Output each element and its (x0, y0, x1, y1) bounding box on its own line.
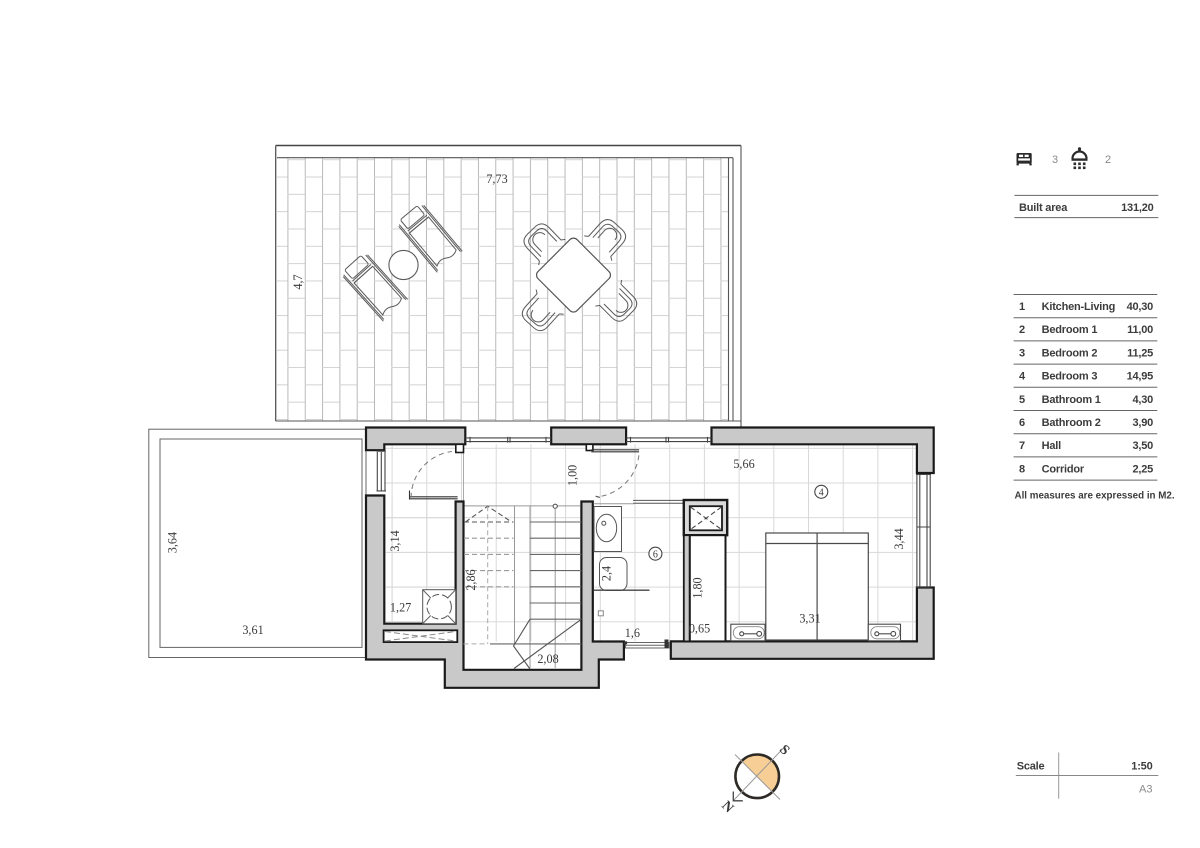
svg-text:Bedroom 2: Bedroom 2 (1042, 347, 1098, 359)
svg-text:1,00: 1,00 (566, 465, 580, 486)
svg-text:Hall: Hall (1042, 440, 1062, 452)
svg-text:2,86: 2,86 (464, 569, 478, 590)
svg-text:2,4: 2,4 (600, 566, 614, 581)
svg-text:Bedroom 3: Bedroom 3 (1042, 371, 1098, 383)
svg-text:2: 2 (1105, 154, 1111, 166)
svg-text:3,64: 3,64 (165, 532, 179, 553)
svg-text:Bathroom 2: Bathroom 2 (1042, 417, 1101, 429)
svg-text:4: 4 (819, 487, 824, 498)
svg-text:All measures are expressed in: All measures are expressed in M2. (1015, 491, 1175, 502)
svg-text:40,30: 40,30 (1127, 301, 1154, 313)
svg-text:7,73: 7,73 (486, 172, 507, 186)
svg-text:3,44: 3,44 (892, 528, 906, 549)
svg-text:6: 6 (653, 549, 658, 560)
svg-text:5: 5 (1019, 394, 1025, 406)
svg-text:3: 3 (1019, 347, 1025, 359)
svg-text:A3: A3 (1139, 784, 1152, 796)
svg-text:3,61: 3,61 (242, 623, 263, 637)
svg-text:1,6: 1,6 (625, 626, 640, 640)
svg-text:7: 7 (1019, 440, 1025, 452)
svg-text:1,80: 1,80 (691, 577, 705, 598)
svg-text:2,08: 2,08 (537, 652, 558, 666)
svg-text:Scale: Scale (1017, 761, 1045, 773)
svg-text:Built area: Built area (1019, 202, 1068, 214)
svg-text:Corridor: Corridor (1042, 463, 1085, 475)
svg-text:Kitchen-Living: Kitchen-Living (1042, 301, 1116, 313)
svg-text:1,27: 1,27 (390, 601, 411, 615)
svg-text:6: 6 (1019, 417, 1025, 429)
svg-text:2,25: 2,25 (1132, 463, 1153, 475)
svg-text:1: 1 (1019, 301, 1025, 313)
svg-text:4,7: 4,7 (291, 274, 305, 289)
svg-text:131,20: 131,20 (1121, 202, 1154, 214)
svg-text:3,50: 3,50 (1132, 440, 1153, 452)
svg-text:0,65: 0,65 (689, 622, 710, 636)
svg-text:8: 8 (1019, 463, 1025, 475)
svg-text:4: 4 (1019, 371, 1026, 383)
svg-text:Bathroom 1: Bathroom 1 (1042, 394, 1101, 406)
svg-text:3,31: 3,31 (799, 612, 820, 626)
svg-text:11,00: 11,00 (1127, 324, 1153, 336)
svg-text:4,30: 4,30 (1132, 394, 1153, 406)
svg-text:5,66: 5,66 (733, 457, 754, 471)
svg-text:14,95: 14,95 (1127, 371, 1154, 383)
svg-text:3,90: 3,90 (1132, 417, 1153, 429)
svg-text:1:50: 1:50 (1131, 761, 1152, 773)
svg-text:Bedroom 1: Bedroom 1 (1042, 324, 1098, 336)
svg-text:3: 3 (1052, 154, 1058, 166)
svg-text:S: S (776, 742, 792, 758)
svg-text:2: 2 (1019, 324, 1025, 336)
svg-text:3,14: 3,14 (388, 530, 402, 551)
svg-text:11,25: 11,25 (1127, 347, 1153, 359)
